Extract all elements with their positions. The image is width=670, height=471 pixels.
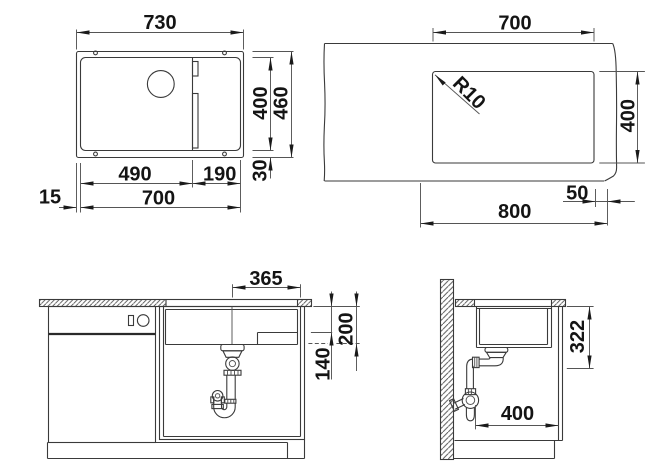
- svg-text:400: 400: [501, 403, 534, 425]
- svg-text:490: 490: [118, 163, 151, 185]
- svg-text:365: 365: [249, 268, 282, 290]
- svg-text:15: 15: [39, 187, 61, 209]
- svg-text:400: 400: [250, 86, 272, 119]
- svg-text:800: 800: [498, 201, 531, 223]
- svg-text:R10: R10: [448, 72, 490, 114]
- svg-text:400: 400: [617, 99, 639, 132]
- svg-text:200: 200: [335, 312, 357, 345]
- svg-text:730: 730: [143, 12, 176, 34]
- svg-text:140: 140: [312, 347, 334, 380]
- svg-text:700: 700: [498, 12, 531, 34]
- svg-text:460: 460: [270, 86, 292, 119]
- svg-text:322: 322: [567, 320, 589, 353]
- svg-text:50: 50: [566, 183, 588, 205]
- svg-text:190: 190: [203, 163, 236, 185]
- svg-text:30: 30: [249, 159, 271, 181]
- svg-text:700: 700: [142, 187, 175, 209]
